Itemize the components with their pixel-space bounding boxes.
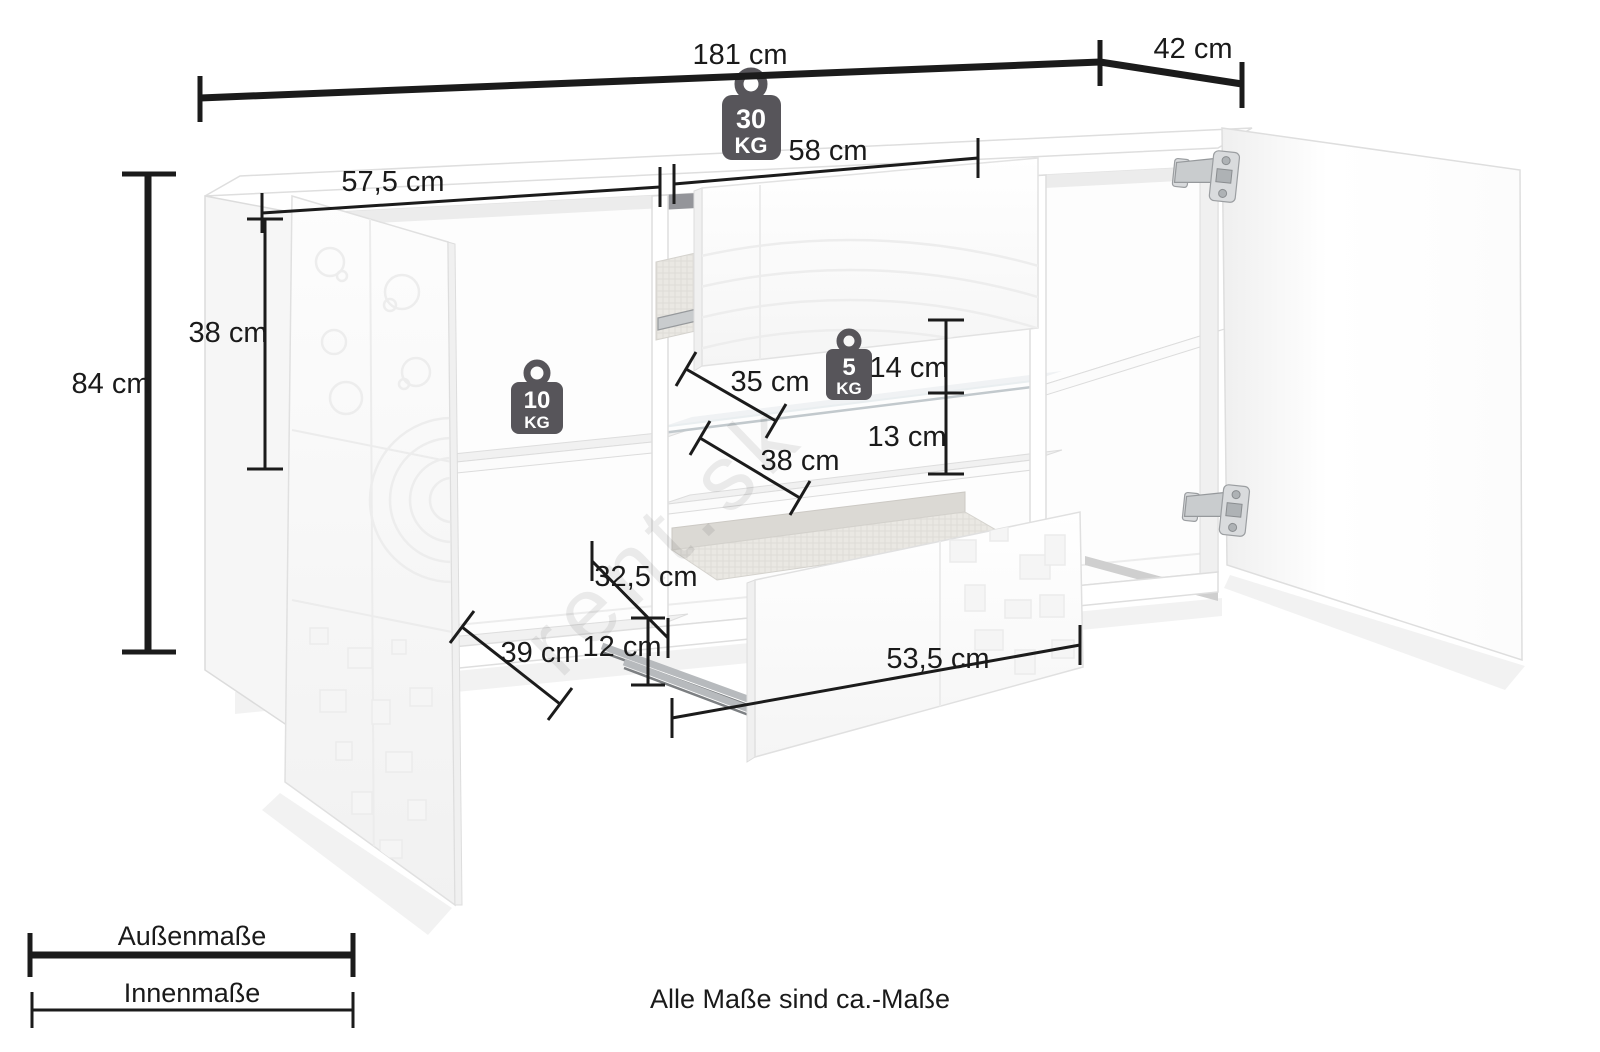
load-unit: KG [735,133,768,158]
dim-total-height: 84 cm [72,174,176,652]
legend-inner: Innenmaße [32,978,353,1028]
dim-label: 12 cm [583,631,662,663]
load-value: 10 [524,387,551,414]
dim-label: 57,5 cm [341,166,444,198]
bottom-drawer-front-edge [747,580,755,762]
legend: Außenmaße Innenmaße [30,921,353,1028]
load-badge-30kg: 30 KG [722,72,781,160]
dim-label: 53,5 cm [886,643,989,675]
cabinet-left-side-panel [205,196,300,734]
legend-outer-label: Außenmaße [118,921,267,951]
dim-label: 181 cm [692,39,787,71]
dim-label: 38 cm [761,445,840,477]
dim-label: 35 cm [731,366,810,398]
cabinet [155,128,1545,1052]
dim-label: 38 cm [189,317,268,349]
load-unit: KG [524,413,550,432]
dim-label: 39 cm [501,637,580,669]
dim-total-depth: 42 cm [1100,33,1242,108]
load-unit: KG [836,379,862,398]
dim-label: 58 cm [789,135,868,167]
dim-label: 14 cm [870,352,949,384]
dim-label: 13 cm [868,421,947,453]
measurement-note: Alle Maße sind ca.-Maße [650,984,950,1014]
legend-outer: Außenmaße [30,921,353,977]
dim-label: 42 cm [1154,33,1233,65]
top-drawer-front-edge [694,188,702,371]
right-door [1171,128,1522,660]
dim-label: 84 cm [72,368,151,400]
furniture-dimension-diagram: rent.sk 30 KG 10 KG 5 KG 181 cm 42 cm 84… [0,0,1600,1052]
dim-total-width: 181 cm [200,39,1100,122]
dim-label: 32,5 cm [594,561,697,593]
load-value: 5 [842,354,855,381]
load-value: 30 [736,104,766,134]
legend-inner-label: Innenmaße [124,978,261,1008]
